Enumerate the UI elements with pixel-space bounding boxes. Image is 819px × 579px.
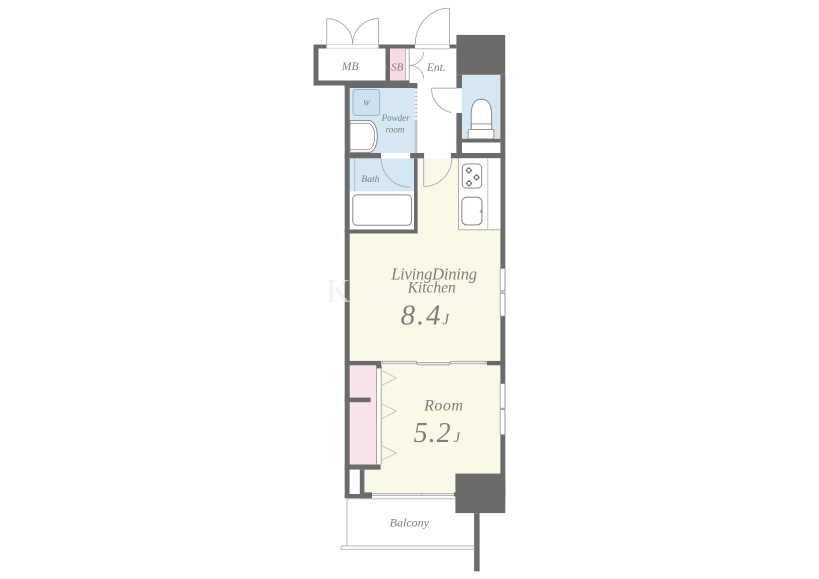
svg-text:Ent.: Ent. (426, 62, 446, 74)
svg-text:Room: Room (423, 398, 463, 415)
svg-text:5.2: 5.2 (414, 418, 452, 449)
svg-text:8.4: 8.4 (401, 300, 443, 332)
svg-text:MB: MB (341, 61, 359, 73)
svg-text:J: J (442, 312, 450, 329)
svg-text:SB: SB (391, 62, 404, 74)
svg-text:Kitchen: Kitchen (407, 279, 456, 296)
svg-text:room: room (386, 125, 405, 135)
svg-text:Powder: Powder (381, 113, 410, 123)
svg-text:K: K (326, 273, 351, 310)
svg-text:Balcony: Balcony (390, 516, 430, 530)
svg-text:Bath: Bath (361, 175, 379, 185)
